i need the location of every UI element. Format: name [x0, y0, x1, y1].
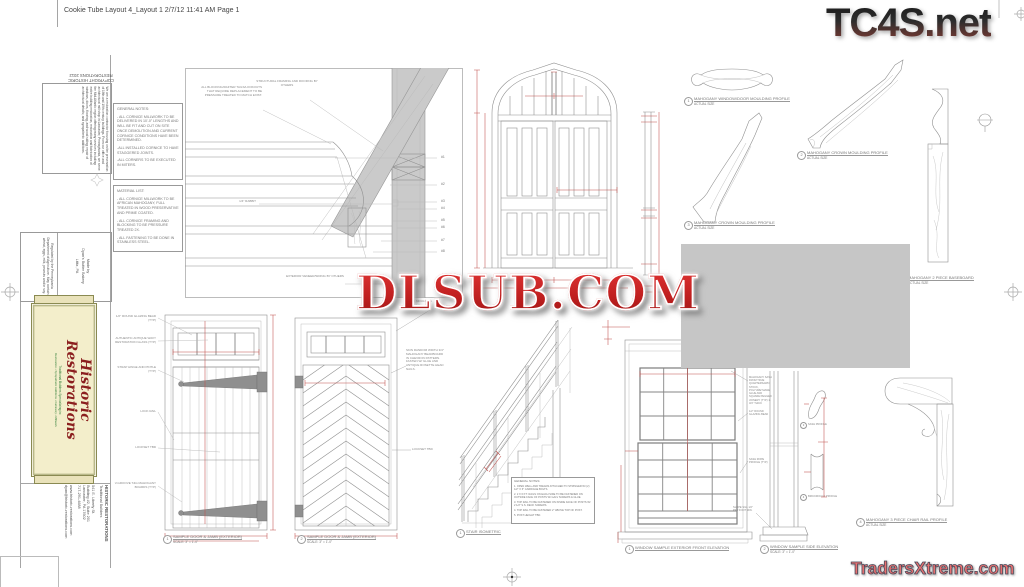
material-list-item: - ALL CORNICE FRAMING AND BLOCKING TO BE…: [117, 219, 179, 233]
general-note-item: -ALL INSTALLED CORNICE TO HAVE STAGGERED…: [117, 146, 179, 155]
door2-note-lockset: LOCKSET TBD: [412, 448, 442, 452]
window-front-number: 1: [625, 545, 634, 554]
crown-moulding-profile2-drawing: [806, 56, 910, 156]
regulated-text: Regulated by the Pennsylvania Department…: [24, 235, 54, 297]
window-side-number: 2: [760, 545, 769, 554]
crown-moulding-profile-drawing: [690, 108, 772, 226]
copyright-line2: RESTORATIONS 2012: [68, 72, 114, 77]
stair-note: 5. POST HEIGHT TBD.: [514, 514, 592, 517]
stair-note: 3. TOP RAIL TO BE FASTENED ON INSIDE FAC…: [514, 501, 592, 507]
stair-notes-box: GENERAL NOTES: 1. OPEN WELL AND TREADS A…: [511, 477, 595, 524]
door1-note: STRAP HINGE AND PINTLE (TYP): [111, 366, 156, 374]
cornice-callout: #8: [441, 249, 445, 253]
logo-tagline-2: Restoration • Sympathetic Additions • Ca…: [54, 308, 58, 472]
window-side-label: WINDOW SAMPLE SIDE ELEVATION SCALE: 3" =…: [770, 544, 838, 554]
cornice-note-veneer: EXTERIOR VENEER/SIDING BY OTHERS: [286, 275, 344, 279]
corner-crop-box: [0, 556, 59, 587]
profile2-label: MAHOGANY CROWN MOULDING PROFILE ACTUAL S…: [807, 150, 888, 160]
mini2-label: BRICKMOULD PROFILE: [808, 495, 837, 498]
made-by-line2: Dyan's Butter Bakery: [79, 235, 84, 297]
window-note-sill: SLOPE SILL 1/2" PER FOOT MIN.: [733, 506, 757, 512]
contact-email: dyan@historic-restorations.com: [63, 485, 68, 565]
copyright-block: COPYRIGHT HISTORIC RESTORATIONS 2012: [68, 57, 114, 83]
profile2-number: 2: [797, 151, 806, 160]
header-divider: [57, 0, 58, 27]
contact-addr3: Lancaster, PA 17602: [81, 485, 86, 565]
drawing-sheet: Cookie Tube Layout 4_Layout 1 2/7/12 11:…: [0, 0, 1024, 587]
window-front-label: WINDOW SAMPLE EXTERIOR FRONT ELEVATION: [635, 545, 729, 551]
mini2-number: 4: [800, 494, 807, 501]
chair-rail-number: 4: [856, 518, 865, 527]
contact-addr2: Building #2, Suite 201: [86, 485, 91, 565]
historic-restorations-logo: Historic Restorations Traditional Builde…: [31, 303, 97, 477]
general-notes-box: GENERAL NOTES: - ALL CORNICE MILLWORK TO…: [113, 103, 183, 180]
profile3-sub: ACTUAL SIZE: [694, 226, 775, 230]
cornice-callout: #5: [441, 218, 445, 222]
watermark-tc4s: TC4S.net: [826, 1, 991, 46]
window-door-moulding-profile-drawing: [686, 66, 778, 100]
door1-scale: SCALE: 3" = 1'-0": [173, 540, 242, 544]
material-list-title: MATERIAL LIST:: [117, 189, 179, 194]
contact-phone: 717-291-4688: [76, 485, 81, 565]
contact-web: www.historic-restorations.com: [68, 485, 73, 565]
profile1-label: MAHOGANY WINDOW/DOOR MOULDING PROFILE AC…: [694, 96, 790, 106]
stair-note: 1. OPEN WELL AND TREADS ATTACHED TO STRI…: [514, 485, 592, 491]
mini1-label: SASH PROFILE: [808, 423, 827, 426]
cornice-callout: #1: [441, 155, 445, 159]
stair-title: STAIR ISOMETRIC: [466, 529, 501, 535]
window-front-title: WINDOW SAMPLE EXTERIOR FRONT ELEVATION: [635, 545, 729, 551]
profile1-sub: ACTUAL SIZE: [694, 102, 790, 106]
cornice-note-blocking: ALL BLOCKING/RAFTER TAILS/LOOKOUTS THAT …: [194, 86, 262, 97]
general-notes-title: GENERAL NOTES:: [117, 107, 179, 112]
watermark-tradersxtreme: TradersXtreme.com: [851, 558, 1014, 579]
chair-rail-sub: ACTUAL SIZE: [866, 523, 947, 527]
door2-scale: SCALE: 3" = 1'-0": [307, 540, 376, 544]
door1-note: LOCKSET TBD: [111, 446, 156, 450]
logo-cap-bottom: [34, 475, 94, 484]
made-by-line3: Lititz, PA: [74, 235, 79, 297]
general-note-item: -ALL CORNERS TO BE EXECUTED IN MITERS.: [117, 158, 179, 167]
door1-note: AUTHENTIC ANTIQUE WAVY RESTORATION GLASS…: [111, 337, 156, 345]
door2-number: 2: [297, 535, 306, 544]
mini-profiles-drawing: [799, 382, 835, 508]
profile3-number: 3: [684, 221, 693, 230]
window-note-sash: MAHOGANY SASH FROM TRUE QUARTERSAWN STOC…: [749, 376, 773, 405]
baseboard-profile-drawing: [920, 86, 992, 272]
door1-elevation-drawing: [108, 308, 303, 553]
mini1-number: 3: [800, 422, 807, 429]
window-side-scale: SCALE: 3" = 1'-0": [770, 550, 838, 554]
door1-number: 1: [163, 535, 172, 544]
about-text: We are a restoration contractor focusing…: [45, 86, 109, 171]
about-box: We are a restoration contractor focusing…: [42, 83, 112, 174]
door2-elevation-drawing: [288, 308, 453, 553]
gray-blank-box: [681, 244, 910, 368]
stair-number: 1: [456, 529, 465, 538]
window-note-rope: SASH ROPE PROFILE (TYP): [749, 458, 771, 464]
baseboard-label: MAHOGANY 2 PIECE BASEBOARD ACTUAL SIZE: [908, 275, 974, 285]
cornice-callout: #6: [441, 225, 445, 229]
cornice-callout: #3: [441, 199, 445, 203]
logo-title: Historic Restorations: [64, 308, 92, 472]
stair-notes-title: GENERAL NOTES:: [514, 480, 592, 484]
profile2-sub: ACTUAL SIZE: [807, 156, 888, 160]
logo-tagline-1: Traditional Builders Specializing in:: [58, 308, 62, 472]
material-list-box: MATERIAL LIST: - ALL CORNICE MILLWORK TO…: [113, 185, 183, 252]
cornice-callout: #4: [441, 206, 445, 210]
chair-rail-profile-drawing: [848, 358, 976, 530]
profile1-number: 1: [684, 97, 693, 106]
general-note-item: - ALL CORNICE MILLWORK TO BE DELIVERED I…: [117, 115, 179, 143]
door1-note: 1/2" ROUND GLAZING BEAD (TYP): [111, 315, 156, 323]
page-header: Cookie Tube Layout 4_Layout 1 2/7/12 11:…: [64, 7, 239, 14]
stair-note: 4. TOP RAIL TO BE FASTENED 2" ABOVE TOP …: [514, 509, 592, 512]
cornice-callout: #7: [441, 238, 445, 242]
door2-label: SAMPLE DOOR & JAMB (EXTERIOR) SCALE: 3" …: [307, 534, 376, 544]
material-list-item: - ALL CORNICE MILLWORK TO BE AFRICAN MAH…: [117, 197, 179, 216]
regulated-block: Regulated by the Pennsylvania Department…: [22, 234, 55, 298]
watermark-dlsub: DLSUB.COM: [356, 266, 700, 321]
profile3-label: MAHOGANY CROWN MOULDING PROFILE ACTUAL S…: [694, 220, 775, 230]
cornice-callout: #2: [441, 182, 445, 186]
stair-note: 2. 2 X 6 P.T. RAILS ON EACH SIDE TO BE F…: [514, 493, 592, 499]
made-by-line1: Made by: [85, 235, 90, 297]
contact-addr1: 541 E. Liberty St.: [90, 485, 95, 565]
made-by-block: Made by Dyan's Butter Bakery Lititz, PA: [57, 234, 91, 298]
door1-label: SAMPLE DOOR & JAMB (EXTERIOR) SCALE: 3" …: [173, 534, 242, 544]
material-list-item: - ALL FASTENING TO BE DONE IN STAINLESS …: [117, 236, 179, 245]
registration-star: [91, 174, 103, 186]
cornice-section-drawing: [185, 68, 463, 298]
cornice-note-rabbit: 1/4" RABBIT: [214, 200, 256, 204]
contact-block: HISTORIC RESTORATIONS Traditional Builde…: [50, 484, 110, 566]
chair-rail-label: MAHOGANY 3 PIECE CHAIR RAIL PROFILE ACTU…: [866, 517, 947, 527]
baseboard-sub: ACTUAL SIZE: [908, 281, 974, 285]
stair-label: STAIR ISOMETRIC: [466, 529, 501, 535]
door1-note: V-GROOVE T&G MAHOGANY BOARDS (TYP): [111, 482, 156, 490]
door2-note-skin: SKIN RANDOM WIDTH 3/4" MAHOGANY BEADBOAR…: [406, 349, 446, 372]
door1-note: LOCK RAIL: [111, 410, 156, 414]
window-note-bead: 1/2" ROUND GLAZING BEAD: [749, 410, 771, 416]
